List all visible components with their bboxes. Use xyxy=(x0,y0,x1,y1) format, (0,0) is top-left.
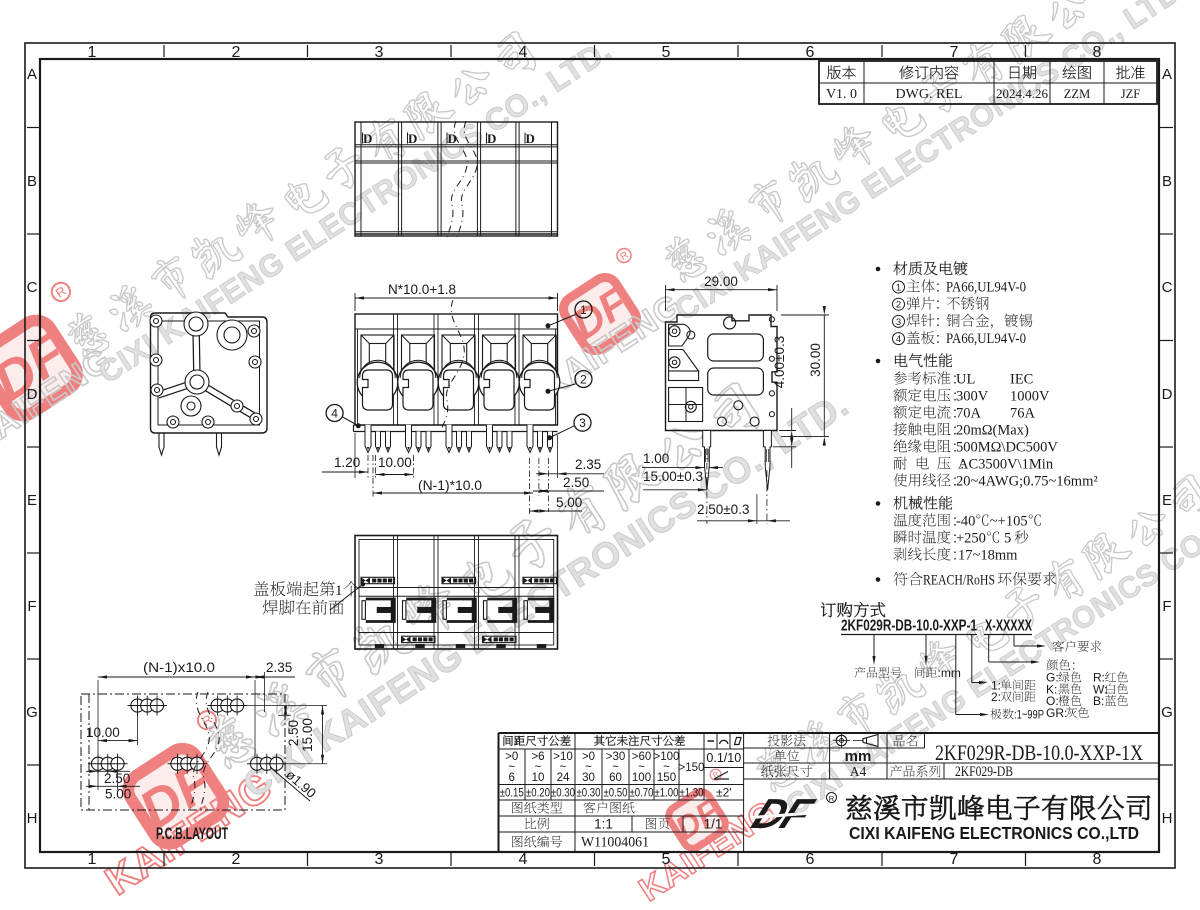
svg-text:AC3500V\1Min: AC3500V\1Min xyxy=(958,457,1054,473)
svg-text:2KF029-DB: 2KF029-DB xyxy=(955,764,1013,780)
svg-text:±0.50: ±0.50 xyxy=(604,788,628,800)
svg-text:2024.4.26: 2024.4.26 xyxy=(996,86,1049,101)
svg-text:1: 1 xyxy=(88,44,97,61)
svg-text:29.00: 29.00 xyxy=(704,274,738,289)
svg-text:0.1/10: 0.1/10 xyxy=(706,751,741,765)
svg-text:15.00: 15.00 xyxy=(300,718,315,752)
svg-text:D: D xyxy=(408,131,417,146)
svg-text:mm: mm xyxy=(845,748,872,765)
svg-text:-40: -40 xyxy=(956,514,975,530)
svg-text:D: D xyxy=(363,131,372,146)
svg-text:A4: A4 xyxy=(850,764,867,779)
svg-text:10.00: 10.00 xyxy=(378,455,412,470)
svg-text:3: 3 xyxy=(579,416,586,430)
svg-text:DWG. REL: DWG. REL xyxy=(896,87,963,102)
svg-text:ZZM: ZZM xyxy=(1064,87,1090,101)
svg-text:5: 5 xyxy=(1004,531,1011,547)
svg-text:20mΩ(Max): 20mΩ(Max) xyxy=(956,423,1029,439)
svg-text:7: 7 xyxy=(950,851,959,868)
svg-text:6: 6 xyxy=(806,44,815,61)
svg-text:(N-1)*10.0: (N-1)*10.0 xyxy=(418,477,482,493)
svg-text:1.00: 1.00 xyxy=(643,451,669,466)
svg-text:UL: UL xyxy=(956,372,975,388)
svg-text:±0.15: ±0.15 xyxy=(500,788,524,800)
svg-text:70A: 70A xyxy=(956,406,982,422)
svg-text:10.00: 10.00 xyxy=(86,725,120,740)
svg-text:B: B xyxy=(27,173,37,190)
svg-text:E: E xyxy=(1162,492,1172,509)
svg-text:~+105: ~+105 xyxy=(990,514,1028,530)
svg-text::1~99P: :1~99P xyxy=(1014,708,1044,722)
svg-text:7: 7 xyxy=(950,44,959,61)
svg-text:8: 8 xyxy=(1093,851,1102,868)
svg-text:E: E xyxy=(27,492,37,509)
svg-text:X-XXXXX: X-XXXXX xyxy=(985,618,1032,635)
svg-text:30: 30 xyxy=(582,772,595,784)
svg-text:1: 1 xyxy=(580,303,587,317)
svg-text:4: 4 xyxy=(519,851,528,868)
svg-text:20~4AWG;0.75~16mm²: 20~4AWG;0.75~16mm² xyxy=(956,474,1098,490)
svg-text:(N-1)x10.0: (N-1)x10.0 xyxy=(143,660,215,675)
svg-text:H: H xyxy=(1162,810,1173,827)
svg-text:1: 1 xyxy=(335,583,343,599)
svg-text:D: D xyxy=(448,131,457,146)
svg-text:5: 5 xyxy=(662,851,671,868)
svg-text:D: D xyxy=(487,131,496,146)
svg-text:±1.30: ±1.30 xyxy=(680,788,704,800)
svg-text:2.35: 2.35 xyxy=(575,457,601,472)
svg-text::: : xyxy=(953,548,957,564)
svg-text:C: C xyxy=(1162,279,1173,296)
svg-text:2: 2 xyxy=(580,372,587,386)
svg-text:N*10.0+1.8: N*10.0+1.8 xyxy=(388,282,456,297)
svg-text:G: G xyxy=(1161,704,1173,721)
svg-text:PA66,UL94V-0: PA66,UL94V-0 xyxy=(946,280,1026,296)
svg-text:300V: 300V xyxy=(956,389,989,405)
svg-text:10: 10 xyxy=(532,772,545,784)
svg-text:4: 4 xyxy=(331,406,338,420)
svg-text:24: 24 xyxy=(557,772,570,784)
svg-text:IEC: IEC xyxy=(1010,372,1033,388)
svg-text:5: 5 xyxy=(662,44,671,61)
svg-text:8: 8 xyxy=(1093,44,1102,61)
svg-text:6: 6 xyxy=(806,851,815,868)
svg-text:GR:: GR: xyxy=(1046,706,1067,720)
svg-text:2KF029R-DB-10.0-XXP-1: 2KF029R-DB-10.0-XXP-1 xyxy=(841,618,977,635)
svg-text:P.C.B.LAYOUT: P.C.B.LAYOUT xyxy=(156,825,228,843)
svg-text:5.00: 5.00 xyxy=(556,495,582,510)
svg-text:1: 1 xyxy=(896,282,901,293)
svg-text:A: A xyxy=(1162,66,1172,83)
svg-text:JZF: JZF xyxy=(1121,87,1141,101)
svg-text:1: 1 xyxy=(88,851,97,868)
svg-text:4: 4 xyxy=(519,44,528,61)
svg-text:G: G xyxy=(26,704,38,721)
svg-text:±1.00: ±1.00 xyxy=(655,788,679,800)
svg-text:C: C xyxy=(27,279,38,296)
svg-text:±0.20: ±0.20 xyxy=(526,788,550,800)
svg-text:6: 6 xyxy=(508,772,514,784)
svg-text:H: H xyxy=(27,810,38,827)
svg-text:R: R xyxy=(829,794,835,803)
svg-text::: : xyxy=(936,331,940,347)
svg-text:2:: 2: xyxy=(991,690,1001,704)
svg-text:D: D xyxy=(1162,386,1173,403)
svg-text:100: 100 xyxy=(632,772,651,784)
svg-text:B:: B: xyxy=(1093,694,1104,708)
svg-text::mm: :mm xyxy=(938,666,961,680)
svg-text:3: 3 xyxy=(896,317,901,328)
svg-text:4.00±0.3: 4.00±0.3 xyxy=(772,336,787,388)
svg-text:1/1: 1/1 xyxy=(704,817,723,832)
svg-text:±0.70: ±0.70 xyxy=(630,788,654,800)
svg-text:2.50±0.3: 2.50±0.3 xyxy=(697,502,749,517)
svg-text:2.50: 2.50 xyxy=(563,475,589,490)
svg-text:3: 3 xyxy=(375,44,384,61)
svg-text:V1. 0: V1. 0 xyxy=(826,87,857,102)
svg-text:1.20: 1.20 xyxy=(334,455,360,470)
svg-text:1:1: 1:1 xyxy=(594,817,613,832)
svg-text:2: 2 xyxy=(896,300,901,311)
svg-text:15.00±0.3: 15.00±0.3 xyxy=(643,469,703,484)
svg-text::: : xyxy=(936,297,940,313)
svg-text:W11004061: W11004061 xyxy=(581,835,649,851)
svg-text:17~18mm: 17~18mm xyxy=(958,548,1018,564)
svg-text:60: 60 xyxy=(609,772,622,784)
svg-text:1000V: 1000V xyxy=(1010,389,1050,405)
svg-text:30.00: 30.00 xyxy=(808,343,823,377)
svg-text:5.00: 5.00 xyxy=(105,787,131,802)
svg-text:±0.30: ±0.30 xyxy=(577,788,601,800)
svg-text:D: D xyxy=(27,386,38,403)
svg-text::: : xyxy=(936,280,940,296)
svg-text:>150: >150 xyxy=(679,762,705,774)
svg-text:±0.30: ±0.30 xyxy=(551,788,575,800)
svg-text:CIXI KAIFENG ELECTRONICS CO.,L: CIXI KAIFENG ELECTRONICS CO.,LTD xyxy=(849,823,1139,843)
svg-text:500MΩ\DC500V: 500MΩ\DC500V xyxy=(956,440,1058,456)
svg-text:±2': ±2' xyxy=(716,786,732,800)
svg-text::: : xyxy=(1072,659,1075,673)
svg-text:PA66,UL94V-0: PA66,UL94V-0 xyxy=(946,331,1026,347)
svg-text:+250: +250 xyxy=(956,531,986,547)
svg-text:2KF029R-DB-10.0-XXP-1X: 2KF029R-DB-10.0-XXP-1X xyxy=(935,740,1143,765)
svg-text:2.35: 2.35 xyxy=(266,660,292,675)
svg-text:76A: 76A xyxy=(1010,406,1036,422)
svg-text::: : xyxy=(936,314,940,330)
svg-text:2: 2 xyxy=(232,851,241,868)
svg-text:2: 2 xyxy=(232,44,241,61)
svg-text:A: A xyxy=(27,66,37,83)
svg-text:B: B xyxy=(1162,173,1172,190)
svg-text:3: 3 xyxy=(375,851,384,868)
svg-text:2.50: 2.50 xyxy=(286,720,301,746)
svg-text:4: 4 xyxy=(896,334,901,345)
svg-text:D: D xyxy=(526,131,535,146)
svg-text:REACH/RoHS: REACH/RoHS xyxy=(923,573,995,589)
svg-text:F: F xyxy=(1162,598,1171,615)
svg-text:150: 150 xyxy=(657,772,676,784)
svg-text:F: F xyxy=(27,598,36,615)
